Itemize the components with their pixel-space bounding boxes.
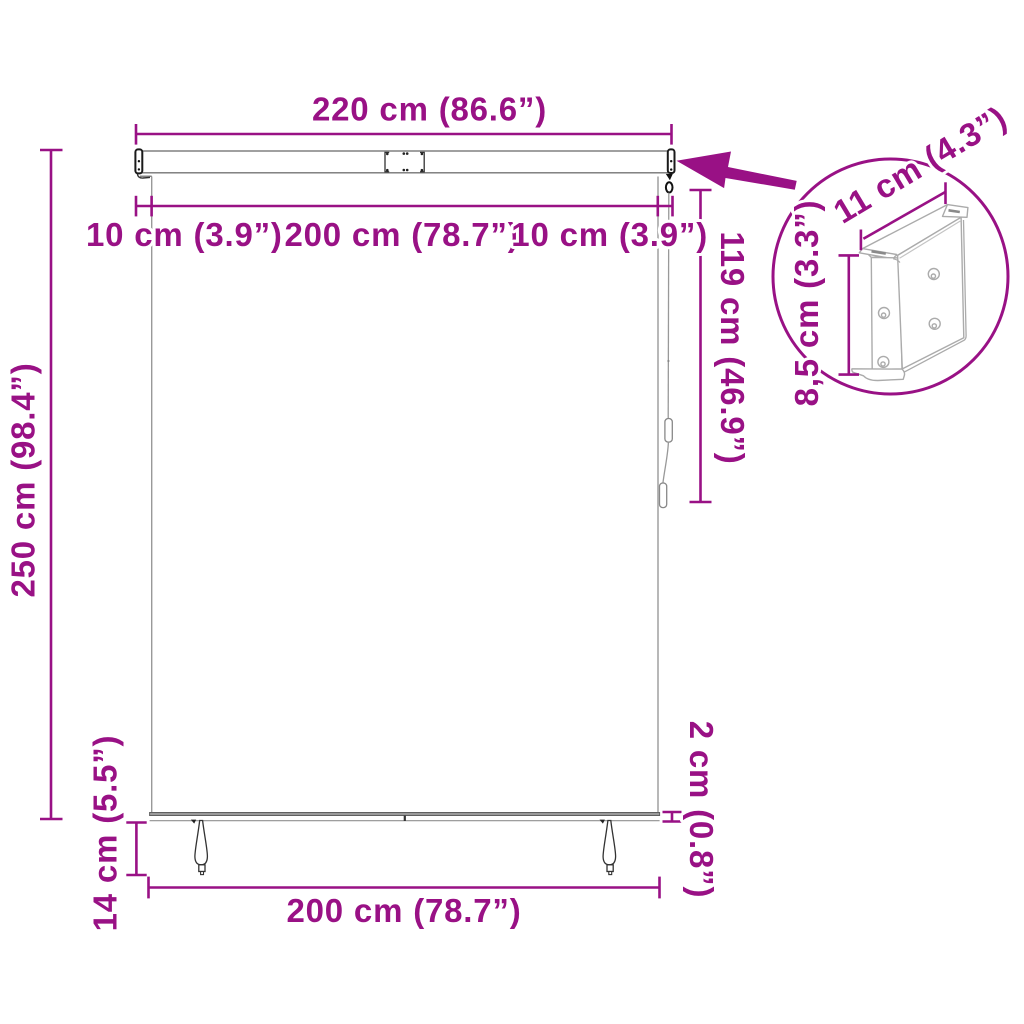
svg-text:2 cm (0.8”): 2 cm (0.8”) <box>683 721 720 899</box>
svg-text:10 cm (3.9”): 10 cm (3.9”) <box>511 216 708 253</box>
svg-text:8,5 cm (3.3”): 8,5 cm (3.3”) <box>788 200 825 407</box>
svg-text:250 cm (98.4”): 250 cm (98.4”) <box>5 363 42 598</box>
svg-text:200 cm (78.7”): 200 cm (78.7”) <box>287 892 522 929</box>
svg-text:200 cm (78.7”): 200 cm (78.7”) <box>285 216 520 253</box>
svg-text:10 cm (3.9”): 10 cm (3.9”) <box>86 216 283 253</box>
svg-text:220 cm (86.6”): 220 cm (86.6”) <box>312 91 547 128</box>
svg-text:14 cm (5.5”): 14 cm (5.5”) <box>87 735 124 932</box>
svg-text:119 cm (46.9”): 119 cm (46.9”) <box>714 231 751 464</box>
